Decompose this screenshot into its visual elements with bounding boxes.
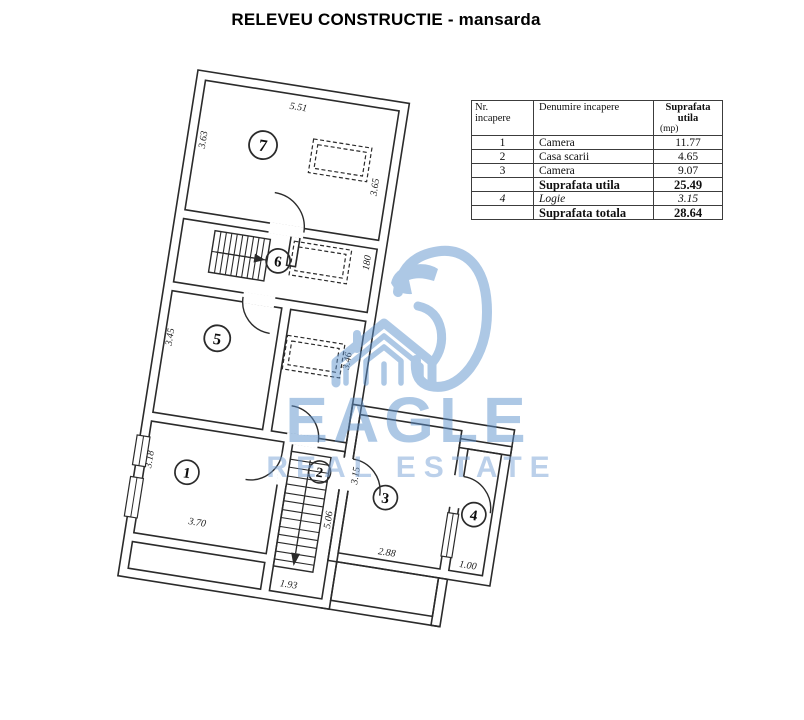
watermark-brand-text: EAGLE: [285, 384, 530, 456]
cell-name: Suprafata utila: [534, 178, 654, 192]
dim-room5-left: 3.45: [163, 327, 177, 347]
watermark: EAGLE REAL ESTATE: [266, 251, 557, 484]
header-denumire: Denumire incapere: [534, 101, 654, 136]
cell-name: Suprafata totala: [534, 206, 654, 220]
room-badge-1: 1: [173, 458, 200, 485]
dim-room1-left: 3.18: [143, 450, 157, 470]
header-suprafata-line2: (mp): [656, 124, 720, 135]
dim-room1-bottom: 3.70: [187, 516, 207, 530]
door-gap-room5: [242, 292, 275, 308]
cell-name: Camera: [534, 164, 654, 178]
header-suprafata: Suprafata utila (mp): [654, 101, 723, 136]
dim-room3-bottom: 2.88: [377, 546, 396, 560]
room-1-outline: [134, 421, 284, 554]
staircase-upper-arrow-line: [216, 252, 255, 258]
room-badge-7: 7: [247, 129, 279, 161]
room-badge-5: 5: [202, 323, 232, 353]
table-header-row: Nr. incapere Denumire incapere Suprafata…: [472, 101, 723, 136]
room-6-number: 6: [273, 254, 283, 271]
room-badge-3: 3: [372, 484, 399, 511]
scanned-floor-plan-page: RELEVEU CONSTRUCTIE - mansarda: [0, 0, 804, 720]
room-4-number: 4: [469, 508, 479, 525]
bottom-strip-right-outline: [331, 562, 439, 617]
staircase-lower-arrowhead: [289, 553, 300, 567]
dim-hall-bottom: 1.93: [279, 578, 298, 592]
watermark-tagline-text: REAL ESTATE: [266, 451, 557, 484]
room-1-number: 1: [182, 465, 192, 482]
dim-room7-left: 3.63: [197, 130, 211, 150]
dim-room4-bottom: 1.00: [458, 559, 477, 573]
roof-window-room7-inner: [314, 145, 366, 176]
cell-nr: 1: [472, 136, 534, 150]
table-row: 3 Camera 9.07: [472, 164, 723, 178]
header-nr-line1: Nr.: [475, 102, 488, 113]
header-nr-incapere: Nr. incapere: [472, 101, 534, 136]
table-row: 1 Camera 11.77: [472, 136, 723, 150]
table-row: 2 Casa scarii 4.65: [472, 150, 723, 164]
room-3-number: 3: [380, 491, 390, 508]
table-row-logie: 4 Logie 3.15: [472, 192, 723, 206]
staircase-upper: [209, 231, 271, 281]
cell-value: 28.64: [654, 206, 723, 220]
cell-nr: 4: [472, 192, 534, 206]
table-row-subtotal: Suprafata utila 25.49: [472, 178, 723, 192]
dim-room7-right: 3.65: [368, 178, 382, 198]
strip-divider-wall: [431, 578, 447, 627]
cell-name: Casa scarii: [534, 150, 654, 164]
dim-top-width: 5.51: [289, 101, 308, 115]
room-areas-table: Nr. incapere Denumire incapere Suprafata…: [471, 100, 723, 220]
cell-nr: [472, 178, 534, 192]
room-badge-4: 4: [460, 501, 487, 528]
room-5-outline: [153, 291, 282, 430]
cell-value: 25.49: [654, 178, 723, 192]
door-gap-room7: [268, 222, 304, 238]
cell-value: 9.07: [654, 164, 723, 178]
roof-window-room5-inner: [288, 341, 339, 372]
cell-value: 4.65: [654, 150, 723, 164]
cell-nr: 3: [472, 164, 534, 178]
table-row-total: Suprafata totala 28.64: [472, 206, 723, 220]
eagle-beak: [391, 264, 438, 294]
room-5-number: 5: [212, 331, 223, 349]
header-nr-line2: incapere: [475, 113, 511, 124]
bottom-strip-left-outline: [128, 542, 265, 590]
cell-nr: [472, 206, 534, 220]
cell-nr: 2: [472, 150, 534, 164]
roof-window-room6-inner: [295, 247, 346, 278]
cell-name: Camera: [534, 136, 654, 150]
cell-name: Logie: [534, 192, 654, 206]
header-suprafata-line1: Suprafata utila: [656, 102, 720, 124]
dim-room6-right: 180: [361, 255, 374, 272]
cell-value: 3.15: [654, 192, 723, 206]
room-7-number: 7: [257, 136, 269, 156]
cell-value: 11.77: [654, 136, 723, 150]
bottom-outer-wall-line: [320, 608, 440, 627]
